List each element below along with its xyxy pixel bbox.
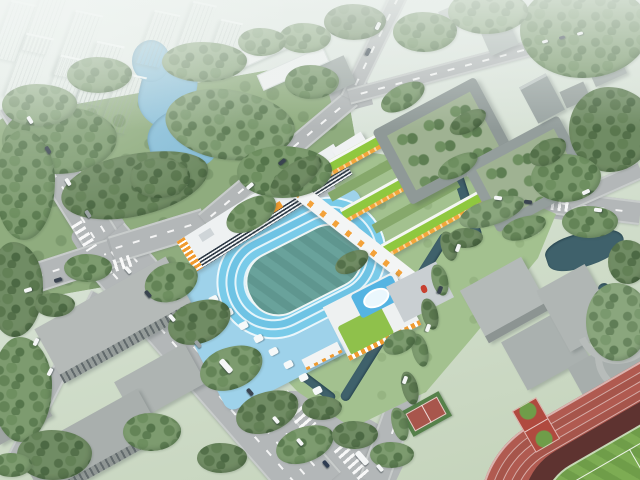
trees — [608, 240, 640, 284]
car — [494, 196, 502, 201]
trees — [123, 413, 181, 451]
trees — [0, 337, 52, 442]
trees — [0, 453, 32, 477]
trees — [393, 12, 457, 52]
trees — [520, 0, 640, 78]
trees — [197, 443, 247, 473]
trees — [586, 283, 640, 361]
car — [524, 200, 532, 205]
trees — [448, 0, 528, 34]
car — [594, 208, 602, 213]
aerial-render-canvas — [0, 0, 640, 480]
